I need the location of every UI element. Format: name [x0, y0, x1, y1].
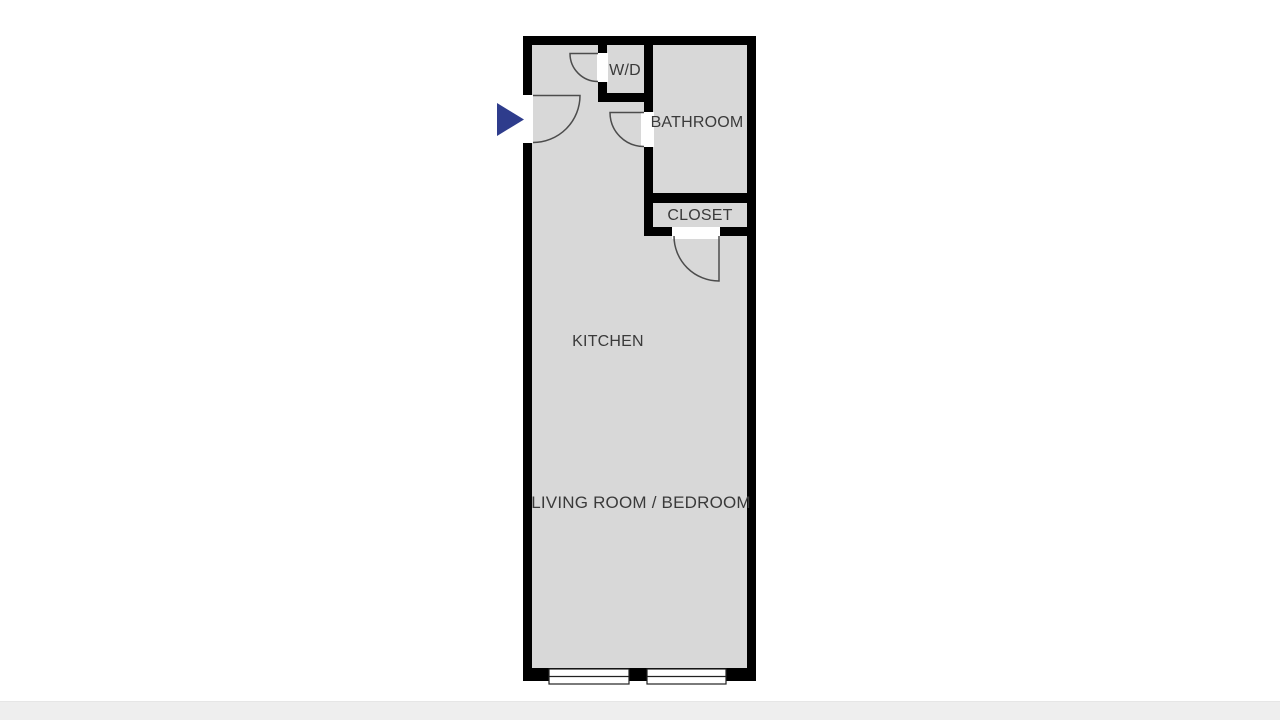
floorplan-viewer: W/D BATHROOM CLOSET KITCHEN LIVING ROOM …: [0, 0, 1280, 720]
room-label-kitchen: KITCHEN: [572, 333, 644, 350]
room-label-bathroom: BATHROOM: [651, 114, 744, 131]
entry-arrow-icon: [497, 103, 524, 136]
room-label-wd: W/D: [609, 62, 641, 79]
closet-door-opening: [672, 227, 720, 239]
entry-door-opening: [522, 95, 533, 143]
floorplan-svg: W/D BATHROOM CLOSET KITCHEN LIVING ROOM …: [0, 0, 1280, 720]
wd-door-opening: [597, 53, 608, 82]
floor: [532, 45, 747, 668]
room-label-living-bedroom: LIVING ROOM / BEDROOM: [531, 493, 751, 512]
bathroom-bottom-wall: [644, 193, 756, 203]
footer-bar: [0, 701, 1280, 720]
room-label-closet: CLOSET: [667, 207, 732, 224]
